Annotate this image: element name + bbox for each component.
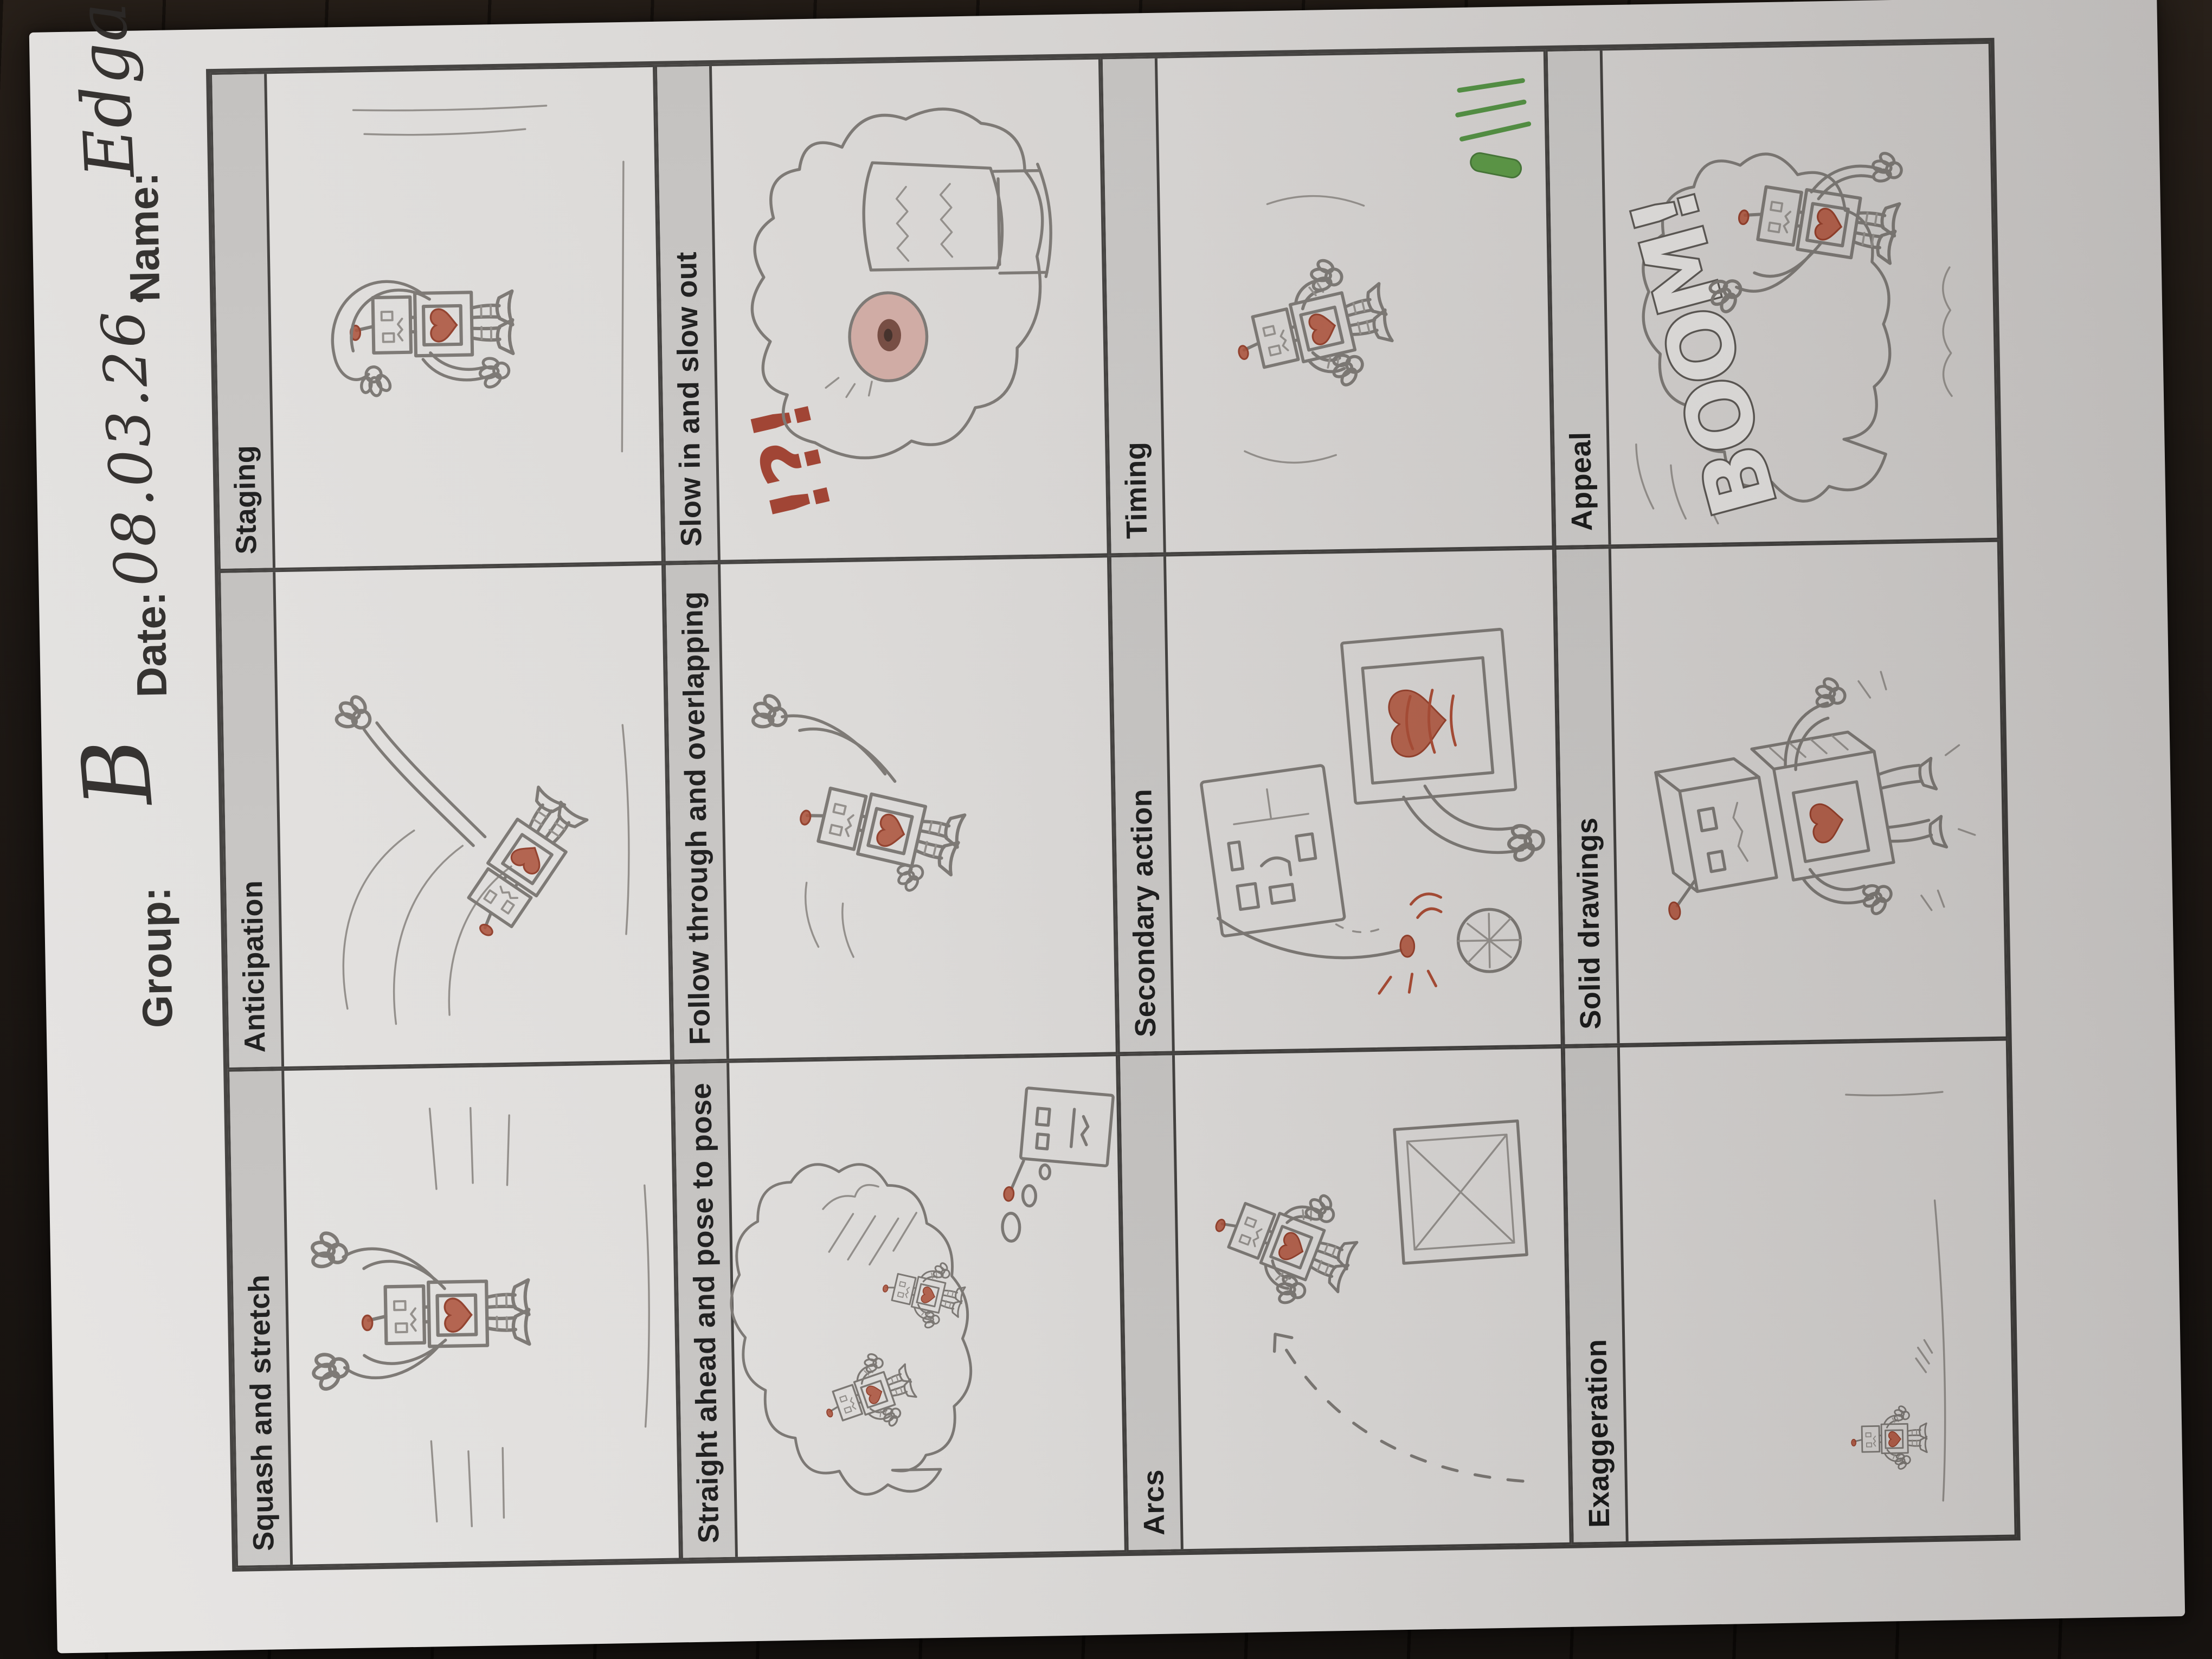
sketch-staging — [267, 67, 661, 568]
sketch-anticipation — [275, 565, 670, 1066]
group-label: Group: — [131, 886, 182, 1028]
name-value-handwritten: Edgars Vītols — [48, 0, 150, 179]
cell-title-band: Exaggeration — [1565, 1047, 1629, 1542]
cell-slow-in-and-slow-out: Slow in and slow out !?! — [655, 57, 1109, 564]
cell-secondary-action: Secondary action — [1109, 548, 1562, 1054]
date-label: Date: — [126, 591, 176, 698]
cell-solid-drawings: Solid drawings — [1554, 540, 2008, 1046]
cell-title-band: Arcs — [1120, 1055, 1183, 1550]
cell-straight-ahead-and-pose-to-pose: Straight ahead and pose to pose — [672, 1054, 1126, 1560]
date-field: Date: — [126, 591, 177, 698]
sketch-follow-through — [721, 558, 1115, 1059]
sketch-squash-and-stretch — [284, 1064, 679, 1565]
cell-title-band: Squash and stretch — [229, 1071, 293, 1566]
cell-follow-through-and-overlapping: Follow through and overlapping — [664, 556, 1117, 1062]
cell-title-band: Timing — [1102, 59, 1166, 554]
group-field: Group: — [131, 886, 183, 1028]
limbs-icon — [1773, 687, 1953, 911]
principles-table: Squash and stretch Anticipation — [206, 38, 2021, 1572]
whipping-arm-icon — [782, 714, 895, 783]
robot-torso-heart-icon — [1341, 629, 1516, 803]
sketch-timing — [1157, 52, 1552, 552]
cell-arcs: Arcs — [1117, 1046, 1571, 1553]
sketch-secondary-action — [1166, 550, 1560, 1051]
robot-head-panel-icon — [1201, 765, 1345, 936]
sketch-solid-drawings — [1611, 542, 2006, 1043]
cell-title-band: Anticipation — [221, 573, 284, 1068]
green-pen-streaks-icon — [1457, 81, 1528, 139]
cell-label: Arcs — [1136, 1469, 1171, 1536]
cell-anticipation: Anticipation — [218, 563, 672, 1070]
cell-timing: Timing — [1100, 49, 1554, 556]
cell-label: Squash and stretch — [242, 1274, 281, 1551]
cell-label: Secondary action — [1124, 788, 1162, 1037]
sketch-slow-in-slow-out: !?! — [712, 60, 1107, 561]
cell-label: Straight ahead and pose to pose — [684, 1082, 726, 1544]
cell-label: Solid drawings — [1570, 817, 1607, 1030]
thought-cloud-icon — [729, 1162, 973, 1497]
name-field: Name: — [118, 172, 170, 302]
group-value-handwritten: B — [61, 734, 173, 811]
down-arm-icon — [1811, 166, 1881, 199]
cell-title-band: Staging — [212, 74, 275, 569]
cell-title-band: Appeal — [1547, 50, 1611, 545]
cell-label: Follow through and overlapping — [676, 591, 717, 1045]
hatched-disc-icon — [1457, 909, 1521, 972]
date-value-handwritten: 08.03.26. — [88, 286, 171, 588]
bubble-trail-icon — [1001, 1165, 1051, 1242]
impact-dashes-icon — [1857, 660, 1986, 915]
cell-squash-and-stretch: Squash and stretch — [227, 1062, 681, 1568]
cell-title-band: Straight ahead and pose to pose — [674, 1063, 738, 1558]
sketch-arcs — [1174, 1049, 1569, 1549]
worksheet-paper: Group: B Date: 08.03.26. Name: Edgars Vī… — [29, 0, 2185, 1654]
cell-appeal: Appeal BOOM! — [1545, 42, 1999, 548]
cell-label: Anticipation — [235, 880, 272, 1053]
cell-label: Timing — [1118, 441, 1154, 539]
green-capsule-icon — [1469, 152, 1522, 179]
cell-exaggeration: Exaggeration — [1563, 1038, 2017, 1545]
cell-title-band: Slow in and slow out — [657, 66, 721, 561]
cell-staging: Staging — [210, 65, 664, 571]
cell-title-band: Follow through and overlapping — [666, 564, 729, 1059]
cell-title-band: Solid drawings — [1557, 549, 1620, 1044]
name-label: Name: — [119, 172, 169, 302]
cell-label: Slow in and slow out — [670, 252, 708, 547]
sketch-exaggeration — [1620, 1040, 2015, 1541]
sketch-straight-ahead — [729, 1056, 1124, 1557]
arrowhead-icon — [1274, 1334, 1292, 1351]
scribble-hatch-icon — [822, 1184, 917, 1265]
cell-title-band: Secondary action — [1111, 557, 1174, 1052]
interrobang-text: !?! — [732, 391, 851, 529]
trajectory-arc-icon — [1279, 1334, 1523, 1486]
cell-label: Staging — [228, 445, 263, 555]
sketch-appeal: BOOM! — [1602, 44, 1997, 545]
cell-label: Appeal — [1564, 432, 1599, 531]
raised-arms-icon — [343, 1248, 446, 1378]
cube-head-icon — [1656, 755, 1777, 895]
thinker-robot-head-icon — [1004, 1086, 1114, 1209]
photo-of-worksheet: { "header": { "group_label": "Group:", "… — [0, 0, 2212, 1659]
cell-label: Exaggeration — [1579, 1339, 1616, 1528]
thrown-arm-icon — [364, 721, 485, 847]
drooping-antenna-icon — [1218, 915, 1401, 960]
